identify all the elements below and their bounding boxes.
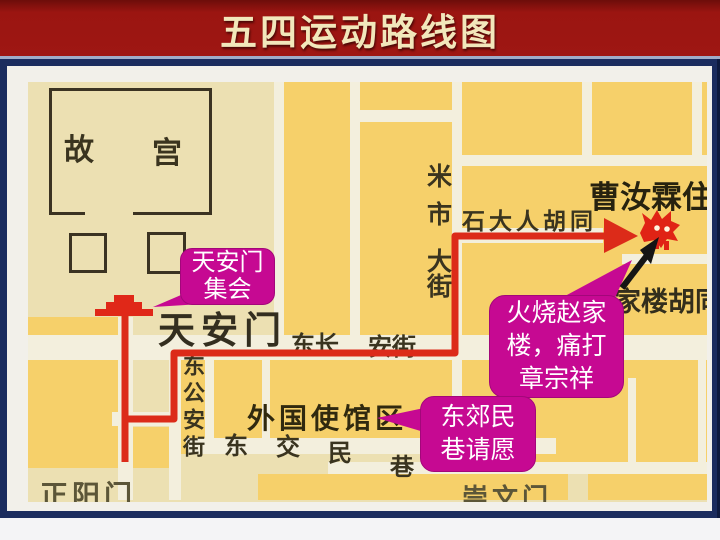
black-arrow-shaft	[622, 254, 648, 288]
bottom-strip	[0, 518, 720, 540]
arrow-layer	[28, 82, 707, 502]
map-mat: 故 宫 天安门 东长 安街 东公安街 外国使馆区 东 交 民 巷 正阳门 崇文门…	[7, 66, 712, 511]
route-map: 故 宫 天安门 东长 安街 东公安街 外国使馆区 东 交 民 巷 正阳门 崇文门…	[28, 82, 707, 502]
title-bar: 五四运动路线图	[0, 0, 720, 56]
slide-frame: 故 宫 天安门 东长 安街 东公安街 外国使馆区 东 交 民 巷 正阳门 崇文门…	[0, 56, 720, 518]
page-title: 五四运动路线图	[220, 0, 500, 56]
slide: 五四运动路线图	[0, 0, 720, 540]
